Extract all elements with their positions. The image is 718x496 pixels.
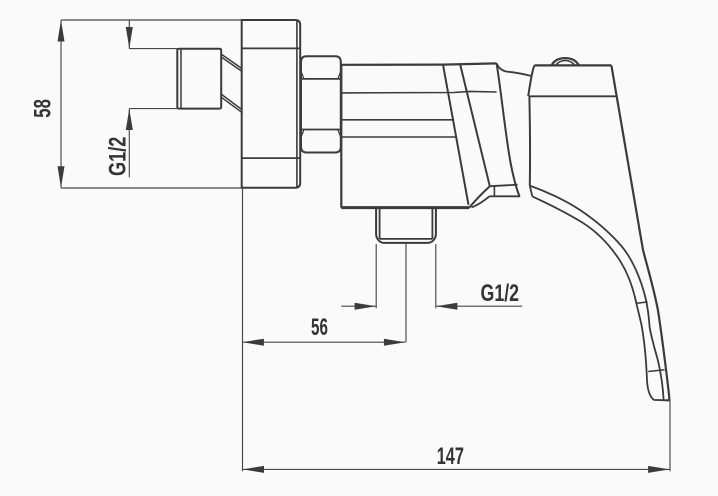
- svg-text:147: 147: [437, 443, 464, 470]
- svg-text:56: 56: [311, 314, 328, 341]
- svg-text:G1/2: G1/2: [104, 137, 131, 176]
- svg-text:G1/2: G1/2: [481, 280, 520, 307]
- svg-text:58: 58: [30, 99, 57, 118]
